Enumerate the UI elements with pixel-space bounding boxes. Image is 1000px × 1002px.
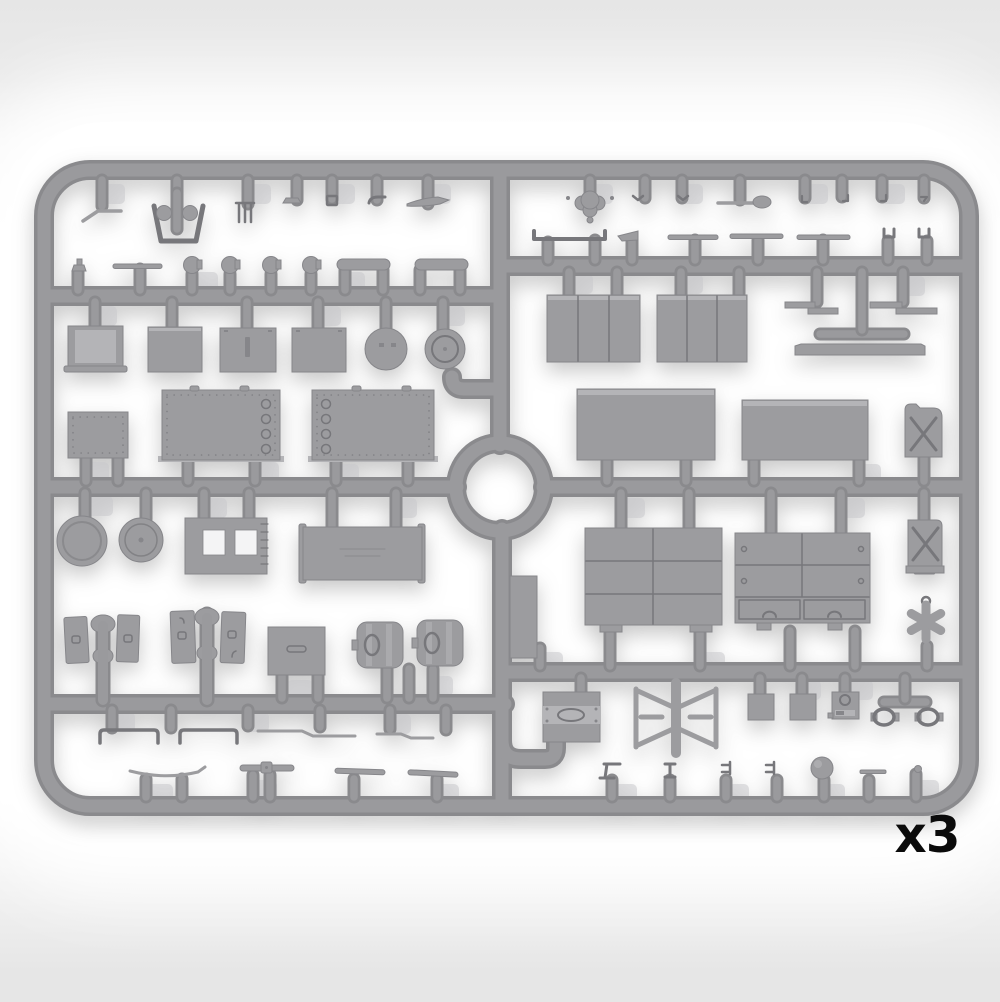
part-clamp-ring [915, 709, 943, 725]
part-stowage-box [268, 627, 325, 675]
part-bent-rod [83, 211, 121, 221]
part-ball [811, 757, 833, 779]
part-slat [668, 235, 718, 240]
quantity-label: x3 [884, 806, 970, 864]
part-drawer-cabinet [735, 533, 870, 630]
part-crate [292, 328, 346, 372]
part-canister [352, 622, 403, 668]
part-riveted-panel-small [68, 412, 128, 458]
part-sill-bar [795, 344, 925, 355]
sprue-diagram [0, 0, 1000, 1002]
part-curved-rod [130, 767, 205, 776]
part-hatch-panel [510, 576, 537, 658]
part-tarpaulin-block [742, 400, 868, 460]
part-round-lid [425, 329, 465, 369]
part-round-lid [365, 328, 407, 370]
parts-left-crate-row [64, 326, 465, 372]
part-u-bracket [180, 730, 237, 743]
part-slat [730, 234, 783, 239]
part-star-wheel [911, 597, 940, 639]
part-comb [236, 203, 254, 222]
part-round-knob [222, 257, 241, 274]
part-linkage-bar [240, 762, 294, 773]
part-knife [407, 197, 449, 206]
part-canister [412, 620, 463, 666]
part-hub-cap [119, 518, 163, 562]
part-crate [148, 327, 202, 372]
part-jerry-can [906, 520, 944, 574]
part-riveted-panel [308, 386, 438, 462]
part-clamp-ring [871, 709, 899, 725]
part-door-pair-on-post [64, 615, 140, 700]
part-stove-block [543, 692, 600, 742]
parts-right-tarp-row [577, 389, 942, 460]
part-e-bracket [766, 762, 774, 774]
runner-frame [44, 170, 969, 806]
part-tarpaulin-block [577, 389, 715, 460]
parts-right-small-row [543, 683, 943, 753]
part-planked-crate [547, 295, 640, 362]
part-u-clamp [884, 229, 894, 237]
part-flat-bar [113, 264, 162, 269]
part-jerry-can [905, 404, 942, 457]
parts-left-panel-row [68, 386, 438, 462]
part-u-clamp [919, 229, 929, 237]
product-image: x3 [0, 0, 1000, 1002]
parts-right-panel-row [585, 520, 944, 639]
part-planked-crate [657, 295, 747, 362]
part-tow-rod [377, 734, 433, 738]
part-tow-rod [258, 731, 355, 736]
part-round-knob [263, 257, 282, 274]
part-pin-bar [860, 770, 886, 774]
part-round-knob [184, 257, 203, 274]
part-round-knob [303, 257, 322, 274]
part-stowage-box [790, 694, 816, 720]
part-riveted-panel [158, 386, 284, 462]
part-rivet [915, 766, 922, 773]
part-radio-box [828, 692, 859, 719]
part-crate-with-hasp [220, 328, 276, 372]
part-trestle-frame [636, 683, 716, 753]
part-slat [797, 235, 850, 240]
part-cross-clamp [157, 193, 198, 229]
part-latch [283, 198, 301, 203]
part-flat-rod [335, 768, 385, 775]
part-paneled-door-grid [585, 528, 722, 632]
part-twin-window-frame [185, 518, 268, 574]
parts-left-small-row [72, 257, 468, 274]
part-cap-knob [72, 259, 86, 271]
part-folding-table [64, 326, 127, 372]
parts-left-rod-rows [100, 730, 458, 777]
part-e-bracket [722, 762, 730, 774]
part-door-pair-on-post [170, 608, 246, 700]
part-round-bar [337, 259, 390, 270]
part-pointed-slat [618, 231, 638, 241]
part-round-bar [415, 259, 468, 270]
part-road-wheel [57, 516, 107, 566]
part-stowage-box [748, 694, 774, 720]
part-step-bracket [785, 302, 838, 314]
part-side-panel [299, 524, 425, 583]
part-flat-rod [408, 770, 458, 778]
